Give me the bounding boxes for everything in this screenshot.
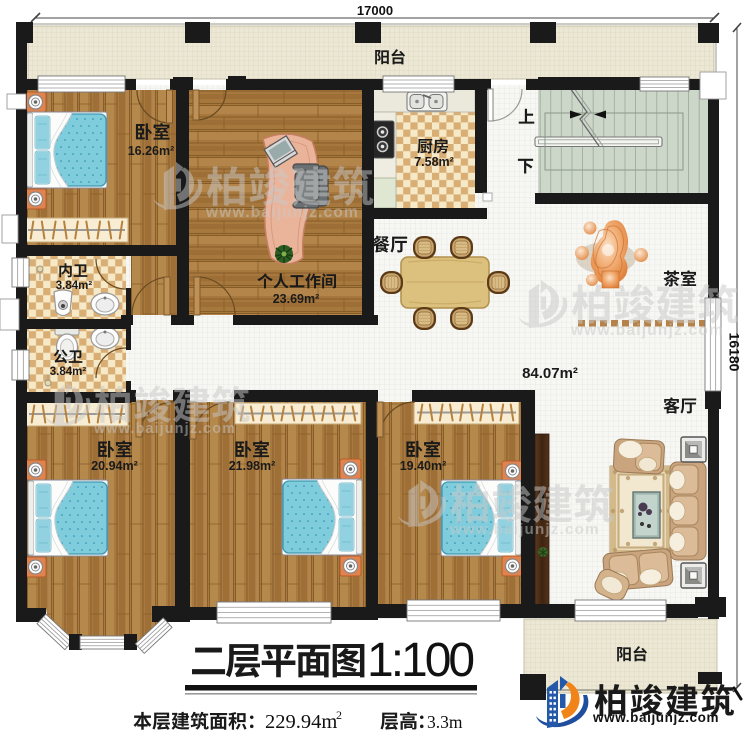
svg-text:21.98m²: 21.98m²: [229, 459, 276, 473]
svg-text:16.26m²: 16.26m²: [128, 144, 175, 158]
svg-text:2: 2: [336, 708, 342, 722]
svg-text:7.58m²: 7.58m²: [414, 155, 454, 169]
svg-text:23.69m²: 23.69m²: [273, 292, 320, 306]
svg-text:3.3m: 3.3m: [427, 712, 463, 732]
svg-text:20.94m²: 20.94m²: [91, 459, 138, 473]
svg-text:16180: 16180: [727, 333, 743, 372]
svg-text:17000: 17000: [357, 3, 393, 18]
svg-text:www.baijunjz.com: www.baijunjz.com: [449, 521, 600, 538]
svg-text:3.84m²: 3.84m²: [50, 366, 87, 378]
svg-text:www.baijunjz.com: www.baijunjz.com: [93, 421, 236, 437]
svg-text:www.baijunjz.com: www.baijunjz.com: [592, 710, 719, 725]
svg-text:19.40m²: 19.40m²: [400, 459, 447, 473]
svg-text:3.84m²: 3.84m²: [56, 280, 93, 292]
svg-text:229.94m: 229.94m: [265, 711, 337, 733]
svg-text:1:100: 1:100: [367, 634, 473, 687]
svg-text:www.baijunjz.com: www.baijunjz.com: [570, 322, 724, 339]
svg-text:84.07m²: 84.07m²: [522, 365, 578, 382]
svg-text:www.baijunjz.com: www.baijunjz.com: [205, 204, 359, 221]
